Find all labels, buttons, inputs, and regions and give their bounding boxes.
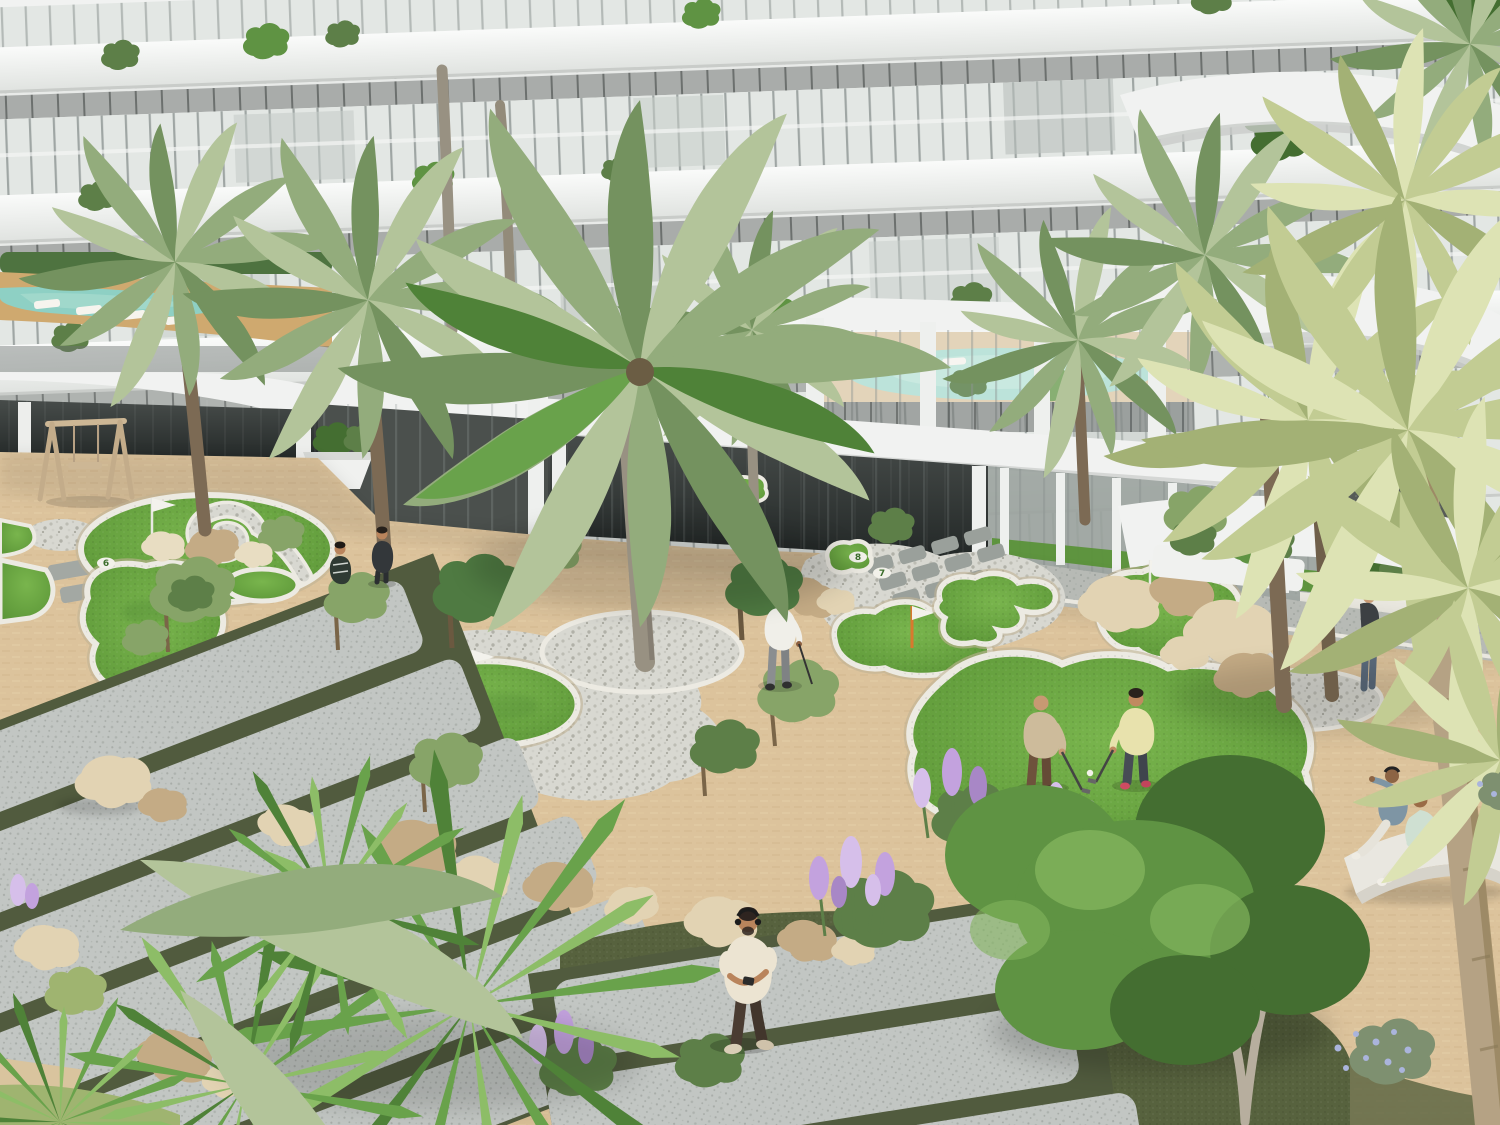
swing-seat — [68, 462, 102, 469]
resort-courtyard-render: 8 7 6 — [0, 0, 1500, 1125]
hole-number: 6 — [103, 559, 109, 569]
club-head — [1082, 790, 1090, 792]
club-head — [1088, 780, 1096, 782]
hole-number: 7 — [879, 569, 885, 579]
coconut-cluster — [626, 358, 654, 386]
column — [972, 466, 986, 562]
golf-ball — [1087, 770, 1093, 776]
hole-number: 8 — [855, 553, 861, 563]
scene-canvas: 8 7 6 — [0, 0, 1500, 1125]
golf-green-kidney-small — [226, 569, 298, 601]
column — [18, 402, 31, 460]
beard — [742, 927, 754, 936]
column — [920, 322, 936, 434]
